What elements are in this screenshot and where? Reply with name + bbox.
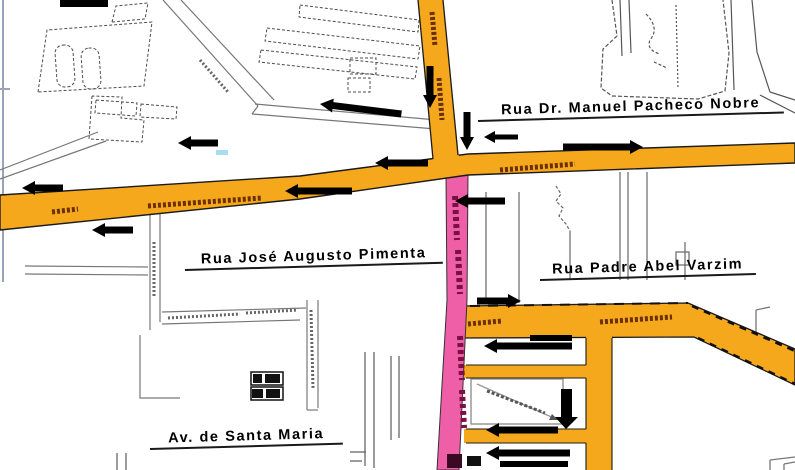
minor-street <box>752 0 795 100</box>
building-outline <box>95 100 137 116</box>
road-bar-mark <box>60 0 108 7</box>
building-outline <box>348 78 370 92</box>
symbol-cell <box>266 389 280 398</box>
road-bar-mark <box>530 335 572 341</box>
road-bar-mark <box>500 461 568 467</box>
minor-street <box>252 106 258 114</box>
minor-streets-right-mid <box>486 172 689 303</box>
water-mark <box>216 150 228 155</box>
one-way-arrow-left <box>92 223 133 237</box>
building-inner-line <box>646 14 667 68</box>
minor-street <box>181 0 274 100</box>
building-outline <box>81 47 102 89</box>
road-name-marks <box>439 78 442 120</box>
road-vertical-top <box>418 0 459 162</box>
building-outline <box>259 50 417 79</box>
street-name-marks <box>200 60 228 92</box>
one-way-arrow-left <box>484 131 518 143</box>
map-canvas[interactable]: Rua Dr. Manuel Pacheco Nobre Rua José Au… <box>0 0 795 470</box>
building-outline <box>112 3 148 22</box>
minor-street <box>162 308 306 312</box>
symbol-cell <box>253 374 262 383</box>
minor-street <box>731 0 734 90</box>
minor-street <box>25 274 148 275</box>
minor-street <box>140 335 180 398</box>
road-surface <box>0 143 795 230</box>
street-name-marks <box>168 314 240 318</box>
street-name-marks <box>311 310 313 388</box>
minor-street <box>784 462 795 470</box>
minor-street <box>252 114 436 129</box>
street-name-marks <box>154 60 313 388</box>
edge-marks-bottom-right <box>756 307 795 470</box>
building-outline <box>265 28 420 59</box>
buildings-top-left <box>38 3 420 142</box>
building-outline <box>89 96 144 142</box>
road-strip <box>464 365 586 378</box>
minor-street <box>0 132 98 170</box>
building-outline <box>140 104 177 119</box>
map-frame <box>0 0 10 282</box>
minor-street <box>163 0 258 106</box>
map-graphics <box>0 0 795 470</box>
road-surface <box>586 332 612 470</box>
building-outline <box>55 44 76 87</box>
road-main-horizontal <box>0 143 795 230</box>
building-inner-line <box>676 5 678 88</box>
street-name-marks <box>246 310 298 313</box>
road-name-marks <box>467 456 481 466</box>
building-outline <box>350 58 376 74</box>
minor-street <box>162 320 300 324</box>
one-way-arrow-down <box>460 112 474 150</box>
symbol-cell <box>252 389 263 398</box>
minor-street <box>0 141 106 179</box>
minor-streets-bottom <box>117 352 399 470</box>
minor-street <box>620 0 622 56</box>
minor-street <box>25 266 148 267</box>
one-way-arrow-left <box>319 97 402 121</box>
ramp-block <box>471 379 563 424</box>
one-way-arrow-left <box>484 339 572 353</box>
one-way-arrow-left <box>178 136 218 150</box>
minor-street <box>770 457 795 470</box>
symbol-cell <box>265 374 280 383</box>
minor-street <box>629 0 631 53</box>
minor-street <box>756 307 770 334</box>
road-name-marks <box>447 454 462 468</box>
one-way-arrow-down <box>561 389 572 417</box>
stepped-path <box>556 186 570 231</box>
building-outline <box>299 5 419 32</box>
one-way-arrow-left <box>486 446 570 460</box>
map-symbol-icons <box>251 372 283 400</box>
